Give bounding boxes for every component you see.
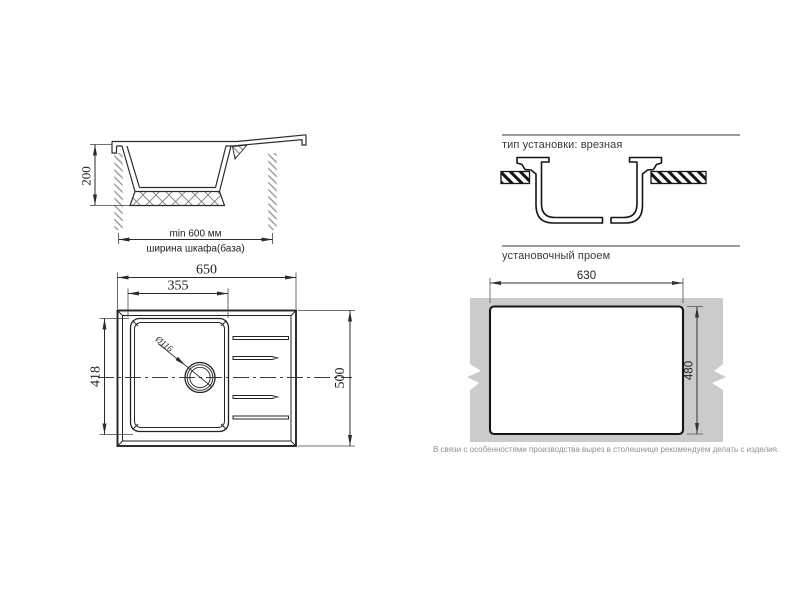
countertop-hatch-left bbox=[501, 172, 530, 184]
top-view-figure: Ø116 650 355 418 500 bbox=[70, 255, 370, 455]
dim-480-label: 480 bbox=[684, 361, 696, 380]
sink-cross-section bbox=[112, 135, 306, 206]
dim-418-label: 418 bbox=[89, 366, 104, 387]
install-type-figure bbox=[495, 152, 725, 232]
dim-200-label: 200 bbox=[79, 166, 94, 186]
production-note: В связи с особенностями производства выр… bbox=[433, 445, 779, 454]
install-type-heading: тип установки: врезная bbox=[502, 134, 740, 151]
drainboard-bracket bbox=[233, 145, 248, 159]
cutout-opening bbox=[490, 307, 683, 435]
dimension-500: 500 bbox=[298, 311, 355, 447]
cabinet-wall-hatch-right bbox=[268, 153, 276, 230]
dim-630-label: 630 bbox=[577, 270, 596, 282]
side-view-figure: 200 min 600 мм ширина шкафа(база) bbox=[78, 118, 340, 260]
countertop-hatch-right bbox=[651, 172, 706, 184]
drawing-sheet: 200 min 600 мм ширина шкафа(база) тип ус… bbox=[0, 0, 800, 600]
dim-355-label: 355 bbox=[168, 279, 189, 294]
min-width-label: min 600 мм bbox=[169, 229, 221, 240]
dim-500-label: 500 bbox=[333, 368, 348, 389]
sink-rim-profile bbox=[517, 158, 662, 224]
dimension-min-600: min 600 мм ширина шкафа(база) bbox=[119, 229, 273, 255]
cutout-figure: 630 480 bbox=[428, 265, 763, 443]
dim-650-label: 650 bbox=[196, 263, 217, 278]
cabinet-width-label: ширина шкафа(база) bbox=[146, 243, 244, 255]
sink-outline bbox=[118, 311, 297, 447]
dimension-650: 650 bbox=[118, 263, 297, 310]
bowl-bottom-hatch bbox=[130, 192, 225, 206]
cutout-heading: установочный проем bbox=[502, 245, 740, 262]
cabinet-wall-hatch-left bbox=[114, 153, 122, 230]
